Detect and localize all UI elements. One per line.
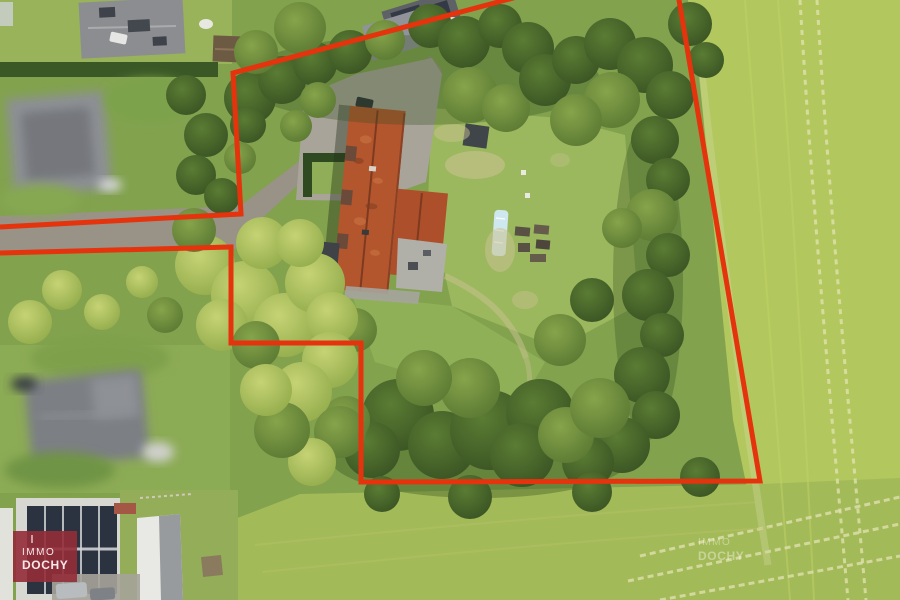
meadow-bottom [228,478,900,600]
worn-lawn-patch [550,153,570,167]
watermark-immo-dochy-faint: IMMO DOCHY [698,537,744,563]
watermark-faint-line1: IMMO [698,537,744,549]
dormer [345,146,357,162]
greenhouse [0,2,13,26]
watermark-immo-dochy: IMMO DOCHY [13,531,77,582]
bamboo [240,364,292,416]
tree [274,2,326,54]
garden-table [199,19,213,29]
tree [631,116,679,164]
bush [84,294,120,330]
chimney [362,229,369,235]
skylight [99,7,116,18]
tree [646,71,694,119]
blurred-car [11,377,37,391]
chimney [369,166,376,172]
blurred-garden [0,184,80,216]
bush [147,297,183,333]
tree [396,350,452,406]
garden-sofa [534,224,550,234]
tree [680,457,720,497]
hedge-row [0,62,218,77]
bush [8,300,52,344]
aerial-photo-scene [0,0,900,600]
tree [570,278,614,322]
garden-item [525,193,530,198]
garden-sofa [536,239,551,249]
bush [126,266,158,298]
tree [602,208,642,248]
terrace [396,238,447,292]
tree [166,75,206,115]
garden-sofa [530,254,546,262]
tree [204,178,240,214]
white-roof-building [0,508,13,600]
garden-item [521,170,526,175]
worn-lawn-patch [434,124,470,142]
skylight [152,36,166,46]
grey-car [90,587,116,600]
tree [534,314,586,366]
gabled-building-dark-slope [159,514,183,600]
watermark-faint-line2: DOCHY [698,549,744,563]
garden-sofa [518,243,530,252]
blurred-car [98,179,122,191]
silver-car [56,582,88,599]
watermark-line1: IMMO [22,547,77,559]
tree [622,269,674,321]
tree [300,82,336,118]
dormer [340,189,352,205]
watermark-line2: DOCHY [22,559,77,573]
blurred-terrace [142,442,174,462]
tree [572,472,612,512]
terrace-furniture [423,250,431,256]
bamboo [276,219,324,267]
blurred-garden [5,452,115,488]
tree [184,113,228,157]
picnic-table [201,555,223,577]
watermark-logo-mark [31,535,33,543]
terrace-furniture [408,262,418,270]
skylight [128,19,151,32]
worn-lawn-patch [445,151,505,179]
terracotta-roof [114,503,136,514]
tree [280,110,312,142]
worn-lawn-patch [512,291,538,309]
tree [668,2,712,46]
blurred-house-wing [91,375,140,419]
tree [550,94,602,146]
worn-lawn-patch [485,228,515,272]
aerial-photo: IMMO DOCHY IMMO DOCHY [0,0,900,600]
tree [570,378,630,438]
bush [42,270,82,310]
hedge [303,153,312,197]
garden-sofa [515,226,531,236]
blurred-house-core [21,107,95,181]
